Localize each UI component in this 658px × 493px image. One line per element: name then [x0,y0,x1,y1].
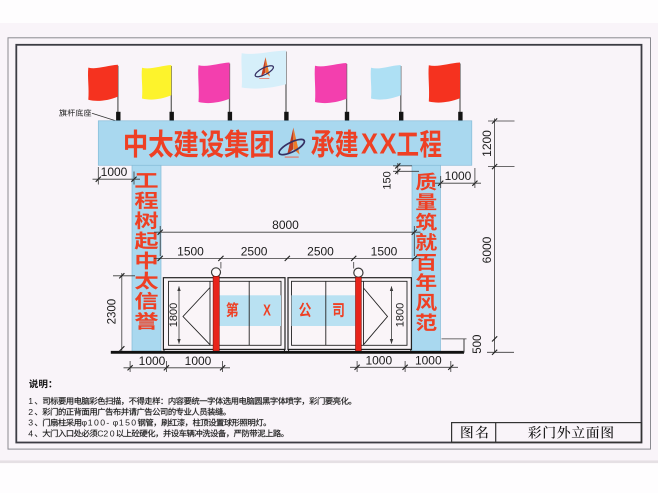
svg-text:1200: 1200 [480,130,494,157]
svg-text:2500: 2500 [307,244,334,258]
svg-text:500: 500 [472,335,484,354]
svg-text:φ: φ [113,418,119,428]
svg-text:1800: 1800 [168,303,180,327]
svg-text:4: 4 [28,428,33,438]
svg-text:1000: 1000 [365,353,392,367]
svg-text:0: 0 [110,428,115,438]
svg-text:φ: φ [82,418,88,428]
svg-text:-: - [106,418,109,428]
svg-text:8000: 8000 [272,218,299,232]
svg-text:1: 1 [28,396,33,406]
svg-text:1: 1 [119,418,124,428]
svg-text:150: 150 [381,171,393,189]
svg-text:1800: 1800 [394,303,406,327]
svg-text:1: 1 [88,418,93,428]
svg-text:X: X [263,302,271,319]
svg-text:1000: 1000 [101,165,128,179]
svg-text:2500: 2500 [241,244,268,258]
svg-text:0: 0 [94,418,99,428]
svg-text:1500: 1500 [177,244,204,258]
svg-text:1500: 1500 [371,244,398,258]
svg-text:3: 3 [28,418,33,428]
svg-text:5: 5 [125,418,130,428]
svg-text:1000: 1000 [415,353,442,367]
svg-text:1000: 1000 [185,354,212,368]
svg-text:1000: 1000 [445,169,472,183]
svg-text:6000: 6000 [480,236,494,263]
svg-text:2: 2 [103,428,108,438]
svg-text:0: 0 [100,418,105,428]
svg-text:2300: 2300 [107,299,119,325]
svg-text:XX: XX [361,127,398,160]
svg-text:2: 2 [28,407,33,417]
svg-text:1000: 1000 [139,354,166,368]
svg-text:0: 0 [131,418,136,428]
